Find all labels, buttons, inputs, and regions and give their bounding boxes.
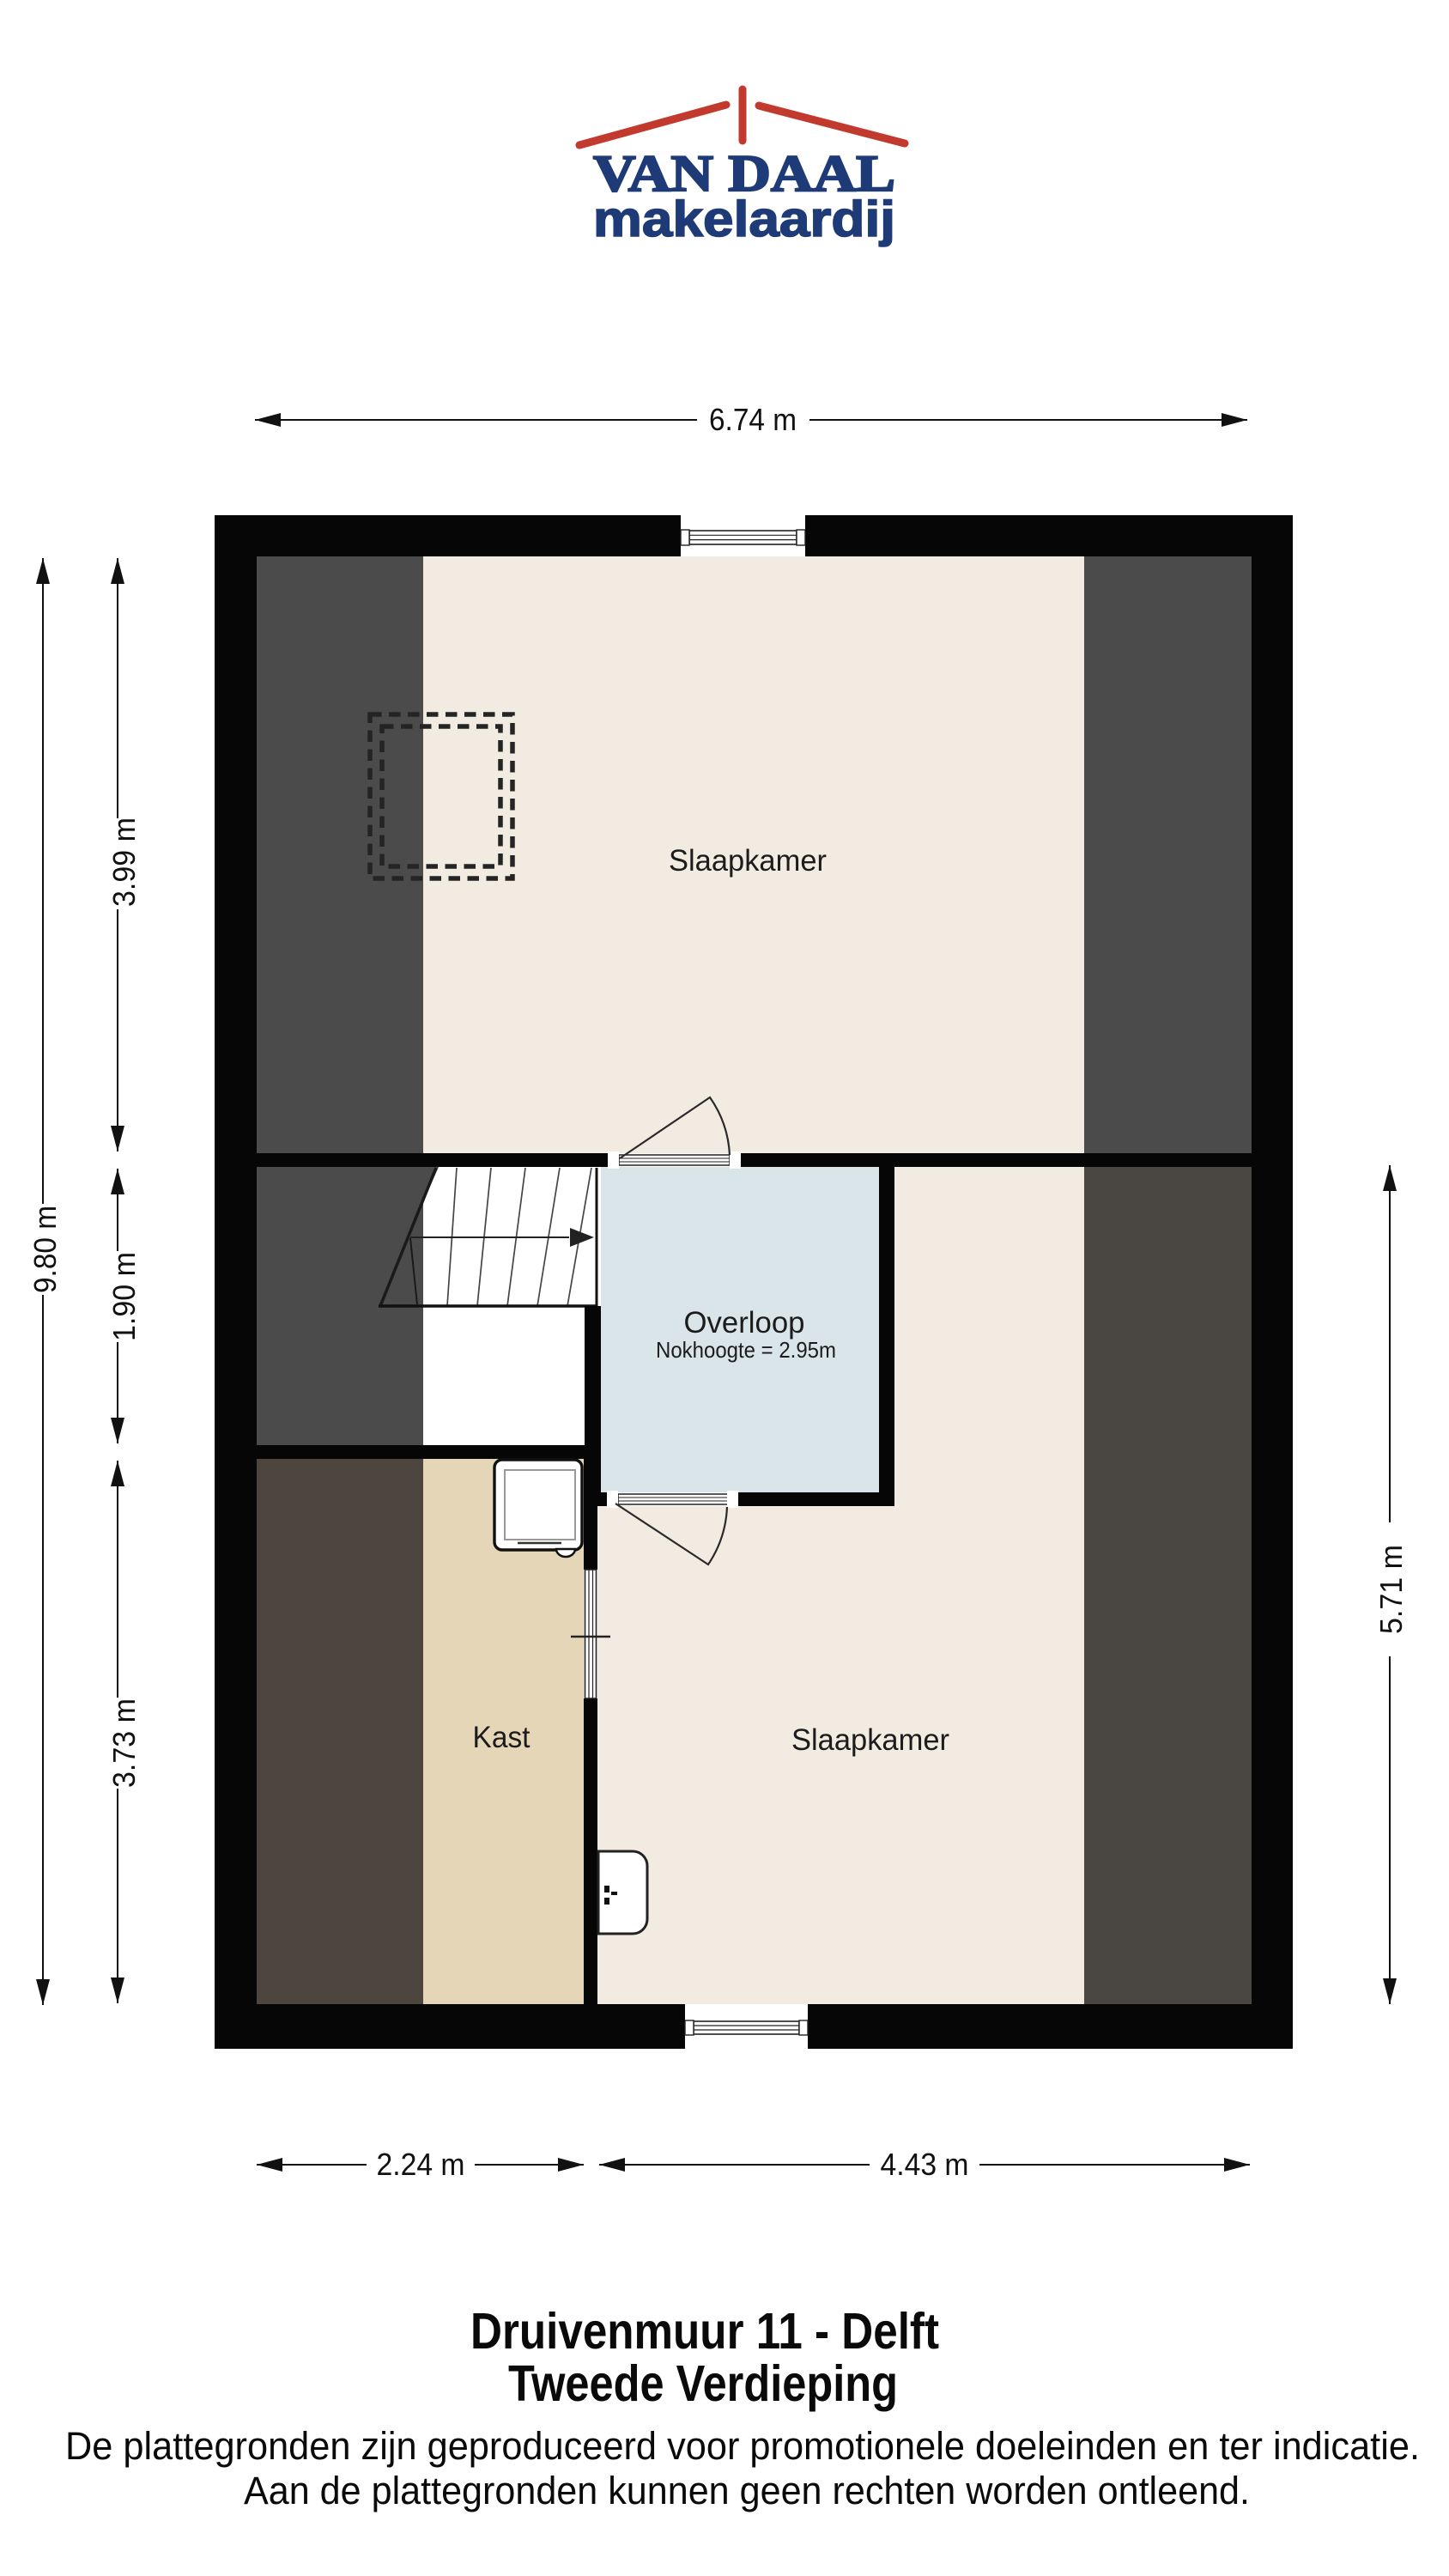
- svg-text:1.90 m: 1.90 m: [106, 1252, 142, 1341]
- svg-text:3.73 m: 3.73 m: [106, 1698, 142, 1788]
- svg-text:9.80 m: 9.80 m: [27, 1206, 63, 1293]
- svg-text:4.43 m: 4.43 m: [881, 2147, 969, 2182]
- svg-text:Slaapkamer: Slaapkamer: [791, 1723, 949, 1757]
- svg-text:2.24 m: 2.24 m: [377, 2147, 465, 2182]
- svg-text:Druivenmuur 11 - Delft: Druivenmuur 11 - Delft: [470, 2303, 939, 2360]
- svg-text:Nokhoogte = 2.95m: Nokhoogte = 2.95m: [656, 1337, 836, 1363]
- svg-text:Aan de plattegronden kunnen ge: Aan de plattegronden kunnen geen rechten…: [244, 2469, 1250, 2512]
- svg-text:De plattegronden zijn geproduc: De plattegronden zijn geproduceerd voor …: [65, 2424, 1420, 2468]
- svg-text:3.99 m: 3.99 m: [106, 817, 142, 907]
- svg-text:5.71 m: 5.71 m: [1373, 1545, 1409, 1634]
- svg-text:Slaapkamer: Slaapkamer: [669, 844, 827, 878]
- svg-text:6.74 m: 6.74 m: [709, 402, 797, 437]
- svg-text:Tweede Verdieping: Tweede Verdieping: [508, 2355, 898, 2412]
- svg-text:Overloop: Overloop: [684, 1306, 805, 1340]
- svg-text:Kast: Kast: [473, 1721, 530, 1754]
- svg-text:makelaardij: makelaardij: [593, 191, 895, 247]
